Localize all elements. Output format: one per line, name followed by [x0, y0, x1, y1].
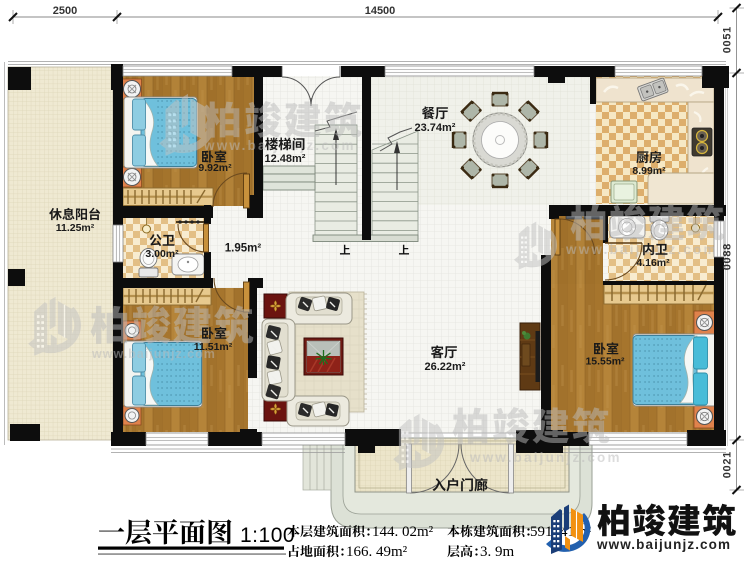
svg-text:0: 0: [722, 257, 734, 263]
svg-text:166. 49m²: 166. 49m²: [346, 544, 408, 560]
svg-text:2500: 2500: [53, 5, 77, 17]
svg-text:0: 0: [722, 465, 734, 471]
svg-text:8.99m²: 8.99m²: [632, 165, 666, 177]
svg-text:3. 9m: 3. 9m: [480, 544, 515, 560]
svg-text:0: 0: [722, 472, 734, 478]
svg-text:3.00m²: 3.00m²: [145, 248, 179, 260]
svg-text:15.55m²: 15.55m²: [585, 356, 625, 368]
svg-text:8: 8: [722, 251, 734, 257]
svg-text:144. 02m²: 144. 02m²: [372, 524, 434, 540]
svg-text:www.baijunjz.com: www.baijunjz.com: [469, 450, 622, 465]
svg-text:14500: 14500: [365, 5, 396, 17]
svg-text:9.92m²: 9.92m²: [198, 162, 232, 174]
svg-text:www.baijunjz.com: www.baijunjz.com: [596, 537, 731, 552]
svg-text:0: 0: [722, 40, 734, 46]
svg-text:2: 2: [722, 459, 734, 465]
svg-text:26.22m²: 26.22m²: [425, 361, 466, 373]
svg-text:23.74m²: 23.74m²: [415, 122, 456, 134]
svg-text:11.25m²: 11.25m²: [56, 222, 95, 234]
svg-text:8: 8: [722, 244, 734, 250]
svg-text:1.95m²: 1.95m²: [225, 243, 262, 255]
svg-text:www.baijunjz.com: www.baijunjz.com: [565, 242, 718, 257]
svg-text:12.48m²: 12.48m²: [265, 153, 306, 165]
svg-text:1: 1: [722, 27, 734, 33]
svg-text:4.16m²: 4.16m²: [636, 257, 670, 269]
svg-text:5: 5: [722, 34, 734, 40]
svg-text:0: 0: [722, 264, 734, 270]
svg-text:1: 1: [722, 452, 734, 458]
svg-text:0: 0: [722, 47, 734, 53]
svg-text:11.51m²: 11.51m²: [194, 341, 233, 353]
svg-text:1:100: 1:100: [240, 524, 295, 547]
